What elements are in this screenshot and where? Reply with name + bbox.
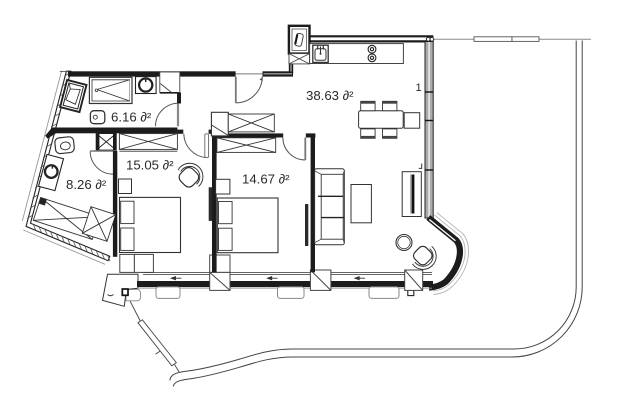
svg-text:15.05 ∂²: 15.05 ∂² — [126, 158, 174, 173]
svg-text:14.67 ∂²: 14.67 ∂² — [242, 172, 290, 187]
svg-text:38.63 ∂²: 38.63 ∂² — [306, 88, 354, 103]
svg-text:1: 1 — [416, 82, 422, 94]
svg-text:8.26 ∂²: 8.26 ∂² — [66, 177, 107, 192]
svg-text:6.16 ∂²: 6.16 ∂² — [111, 110, 152, 125]
